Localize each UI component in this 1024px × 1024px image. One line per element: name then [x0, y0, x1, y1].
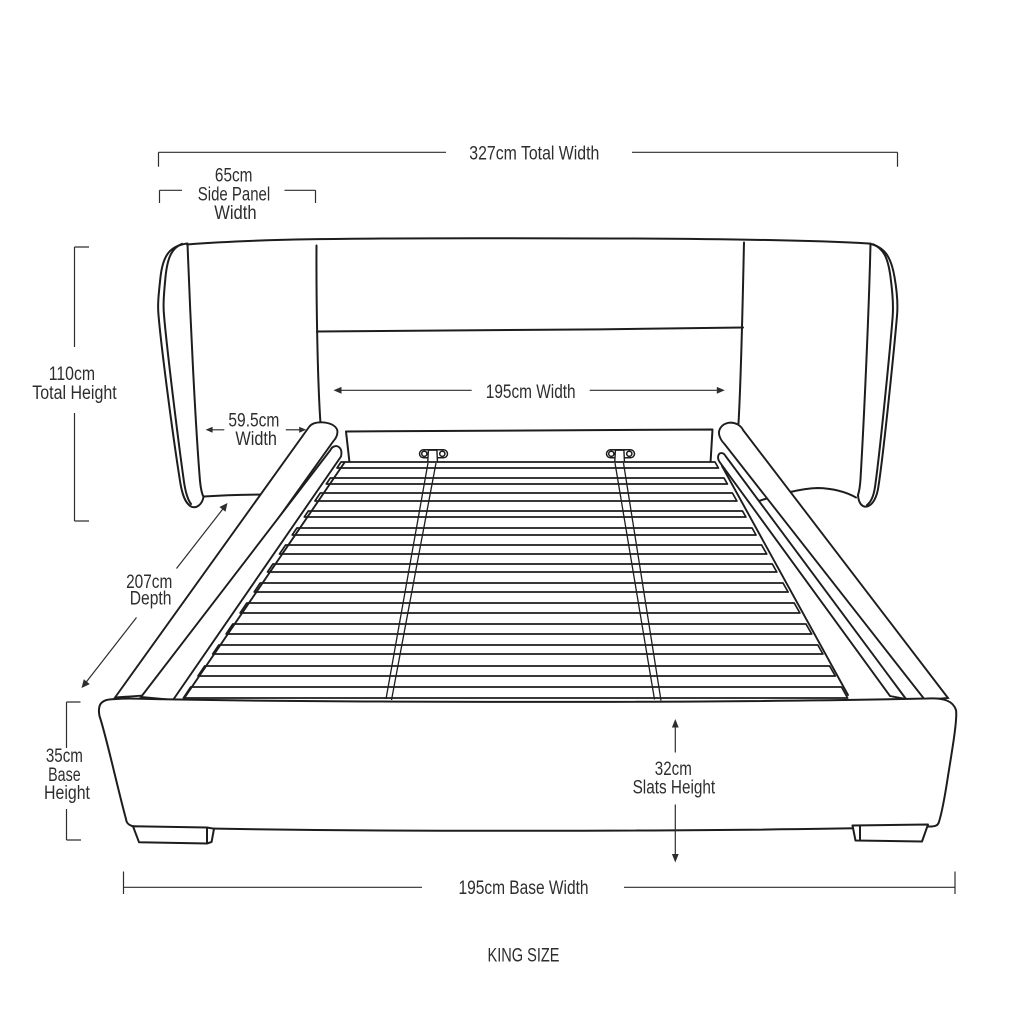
svg-text:Total Height: Total Height [32, 383, 117, 404]
svg-text:Slats Height: Slats Height [633, 777, 716, 798]
svg-text:Width: Width [214, 203, 256, 224]
svg-text:35cm: 35cm [46, 746, 83, 767]
svg-text:KING SIZE: KING SIZE [488, 945, 560, 966]
svg-text:65cm: 65cm [215, 165, 253, 186]
svg-text:Height: Height [44, 783, 91, 804]
svg-text:195cm Base Width: 195cm Base Width [459, 878, 589, 899]
svg-text:327cm Total Width: 327cm Total Width [469, 143, 599, 164]
svg-text:Width: Width [235, 429, 277, 450]
svg-text:195cm Width: 195cm Width [486, 382, 576, 403]
svg-text:Depth: Depth [130, 589, 172, 610]
